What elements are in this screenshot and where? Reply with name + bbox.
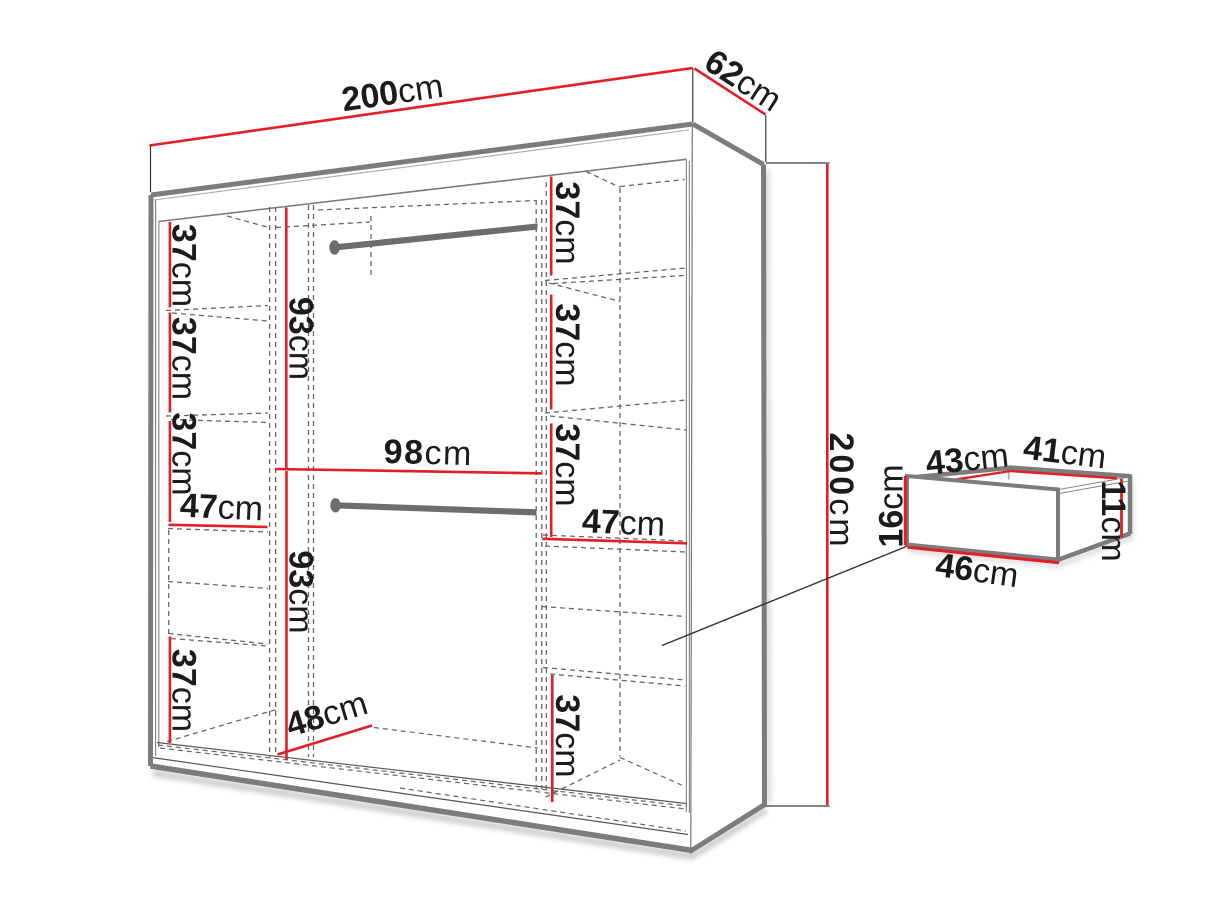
svg-text:37cm: 37cm xyxy=(548,423,586,506)
svg-text:16cm: 16cm xyxy=(873,464,911,547)
svg-text:11cm: 11cm xyxy=(1094,480,1132,561)
svg-text:37cm: 37cm xyxy=(548,181,586,264)
svg-text:98cm: 98cm xyxy=(383,433,473,473)
svg-text:37cm: 37cm xyxy=(165,317,203,400)
svg-text:93cm: 93cm xyxy=(282,550,320,633)
svg-text:37cm: 37cm xyxy=(165,412,203,495)
svg-text:37cm: 37cm xyxy=(548,694,586,777)
svg-text:200cm: 200cm xyxy=(822,432,860,549)
svg-text:37cm: 37cm xyxy=(165,224,203,307)
svg-text:37cm: 37cm xyxy=(165,649,203,732)
svg-text:47cm: 47cm xyxy=(581,502,666,544)
svg-text:47cm: 47cm xyxy=(179,487,264,529)
svg-text:93cm: 93cm xyxy=(282,297,320,380)
svg-text:37cm: 37cm xyxy=(548,303,586,386)
